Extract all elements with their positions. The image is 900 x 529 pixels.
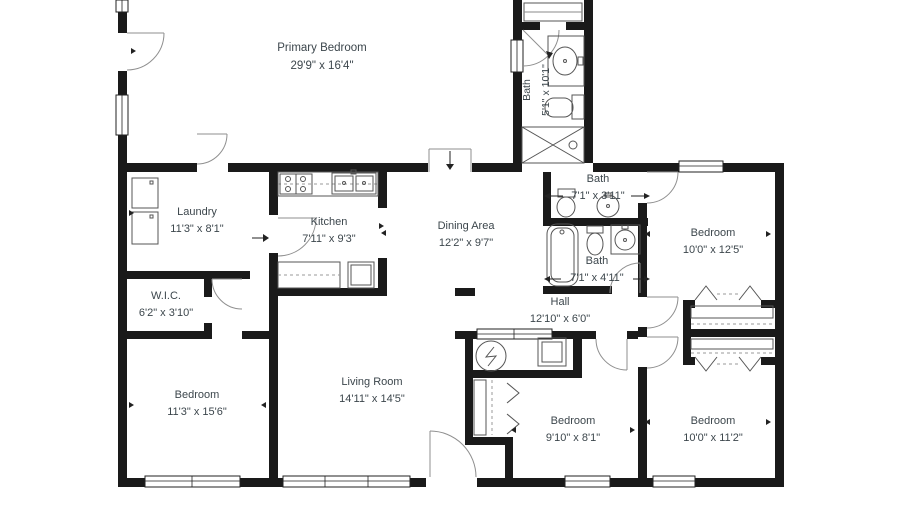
door-arc (647, 337, 678, 368)
room-name: Dining Area (438, 218, 495, 235)
room-label-bath-hall: Bath 7'1" x 4'11" (570, 253, 623, 287)
entry-arrow (252, 234, 269, 242)
closet-shelf (691, 306, 773, 324)
room-name: Living Room (339, 374, 405, 391)
door-arc (523, 30, 559, 66)
room-dims: 9'10" x 8'1" (546, 430, 600, 447)
room-dims: 7'11" x 9'3" (302, 231, 355, 248)
room-dims: 7'1" x 3'11" (571, 188, 624, 205)
closet-shelf (474, 380, 492, 435)
room-dims: 12'2" x 9'7" (438, 235, 495, 252)
furnace (538, 338, 566, 366)
room-label-bedroom-bottom-right: Bedroom 10'0" x 11'2" (683, 413, 743, 447)
room-name: Bath (518, 64, 537, 116)
room-dims: 5'1" x 10'1" (537, 64, 556, 116)
bifold-door (695, 357, 761, 371)
bifold-door (695, 286, 761, 300)
room-dims: 11'3" x 8'1" (170, 221, 223, 238)
water-heater (476, 341, 506, 371)
room-dims: 29'9" x 16'4" (277, 57, 366, 75)
room-label-bath-ensuite: Bath 7'1" x 3'11" (571, 171, 624, 205)
window (565, 476, 610, 487)
room-label-bath-top: Bath 5'1" x 10'1" (518, 64, 556, 116)
entry-arrow (446, 151, 454, 170)
room-dims: 7'1" x 4'11" (570, 270, 623, 287)
window (653, 476, 695, 487)
room-dims: 10'0" x 11'2" (683, 430, 743, 447)
room-name: Bedroom (167, 387, 227, 404)
room-dims: 6'2" x 3'10" (139, 305, 193, 322)
room-name: Primary Bedroom (277, 39, 366, 57)
door-arc (647, 297, 678, 328)
room-label-wic: W.I.C. 6'2" x 3'10" (139, 288, 193, 322)
closet-shelf (691, 339, 773, 353)
window (116, 95, 128, 135)
room-dims: 12'10" x 6'0" (530, 311, 590, 328)
floor-plan-linework (0, 0, 900, 529)
window (145, 476, 240, 487)
room-name: Laundry (170, 204, 223, 221)
room-label-primary-bedroom: Primary Bedroom 29'9" x 16'4" (277, 39, 366, 75)
dryer (132, 212, 158, 244)
door-arc (596, 339, 627, 370)
window (679, 161, 723, 172)
room-name: Kitchen (302, 214, 355, 231)
dishwasher (348, 262, 374, 288)
shower (522, 127, 584, 163)
room-name: Bedroom (683, 225, 743, 242)
room-label-laundry: Laundry 11'3" x 8'1" (170, 204, 223, 238)
bifold-door (507, 383, 519, 434)
dim-arrow (631, 193, 650, 199)
room-label-kitchen: Kitchen 7'11" x 9'3" (302, 214, 355, 248)
room-dims: 10'0" x 12'5" (683, 242, 743, 259)
room-dims: 11'3" x 15'6" (167, 404, 227, 421)
room-name: Hall (530, 294, 590, 311)
window (116, 0, 128, 12)
room-label-bedroom-left: Bedroom 11'3" x 15'6" (167, 387, 227, 421)
kitchen-sink (332, 170, 376, 194)
room-label-hall: Hall 12'10" x 6'0" (530, 294, 590, 328)
room-label-bedroom-middle: Bedroom 9'10" x 8'1" (546, 413, 600, 447)
door-arc (197, 134, 227, 164)
room-label-dining-area: Dining Area 12'2" x 9'7" (438, 218, 495, 252)
room-label-bedroom-top-right: Bedroom 10'0" x 12'5" (683, 225, 743, 259)
room-name: Bath (571, 171, 624, 188)
room-name: Bedroom (683, 413, 743, 430)
floor-plan: Primary Bedroom 29'9" x 16'4" Bath 5'1" … (0, 0, 900, 529)
washer (132, 178, 158, 208)
door-arc (647, 172, 678, 203)
room-name: W.I.C. (139, 288, 193, 305)
room-name: Bedroom (546, 413, 600, 430)
kitchen-island (278, 262, 340, 288)
room-label-living-room: Living Room 14'11" x 14'5" (339, 374, 405, 408)
toilet (587, 226, 603, 255)
door-arc (212, 279, 242, 309)
room-name: Bath (570, 253, 623, 270)
bathroom-sink (611, 225, 640, 254)
linen-shelf (524, 3, 582, 21)
window (283, 476, 410, 487)
room-dims: 14'11" x 14'5" (339, 391, 405, 408)
